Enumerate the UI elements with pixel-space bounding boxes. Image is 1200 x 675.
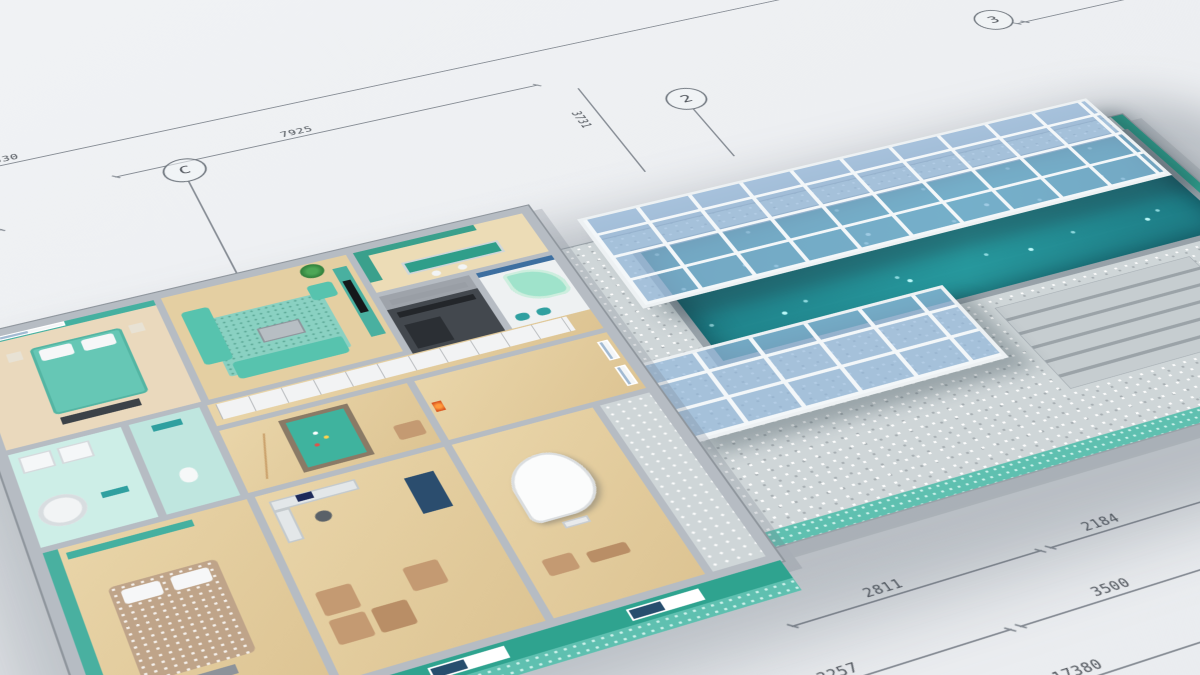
scene: 2150 17530 7925 9460 2181 2811 2184 1563… — [0, 0, 1200, 675]
armchair — [306, 280, 339, 300]
fireplace — [431, 400, 446, 412]
pillow — [120, 580, 164, 604]
bar-stool — [457, 263, 469, 270]
dimension-line — [1154, 0, 1200, 97]
armchair — [392, 419, 427, 440]
round-bathtub — [33, 489, 92, 531]
window — [0, 321, 66, 341]
blueprint-plane: 2150 17530 7925 9460 2181 2811 2184 1563… — [0, 0, 1200, 675]
grid-bubble-2-top: 2 — [659, 84, 714, 113]
bar-stool — [430, 269, 442, 276]
bed — [107, 558, 256, 675]
sofa-module — [402, 558, 449, 591]
nightstand — [128, 322, 146, 333]
dimension-label: 3500 — [1087, 575, 1134, 599]
billiard-balls — [323, 434, 329, 438]
plant — [297, 262, 327, 280]
interior-window — [597, 339, 621, 360]
dimension-line — [1129, 0, 1200, 26]
bidet — [535, 306, 553, 316]
bubble-leader — [1016, 21, 1026, 24]
sofa-module — [328, 610, 376, 645]
pillow — [38, 342, 75, 361]
grid-bubble-3: 3 — [966, 7, 1021, 33]
dimension-label: 3257 — [814, 660, 863, 675]
billiard-balls — [314, 442, 320, 446]
piano-bench — [562, 515, 592, 529]
billiard-balls — [312, 431, 318, 435]
cue-stick — [263, 433, 268, 479]
pillow — [80, 332, 117, 350]
dimension-line — [0, 228, 3, 317]
shelving — [404, 470, 453, 513]
vanity — [151, 418, 183, 431]
bubble-leader — [692, 108, 735, 156]
bench — [585, 541, 631, 563]
office-chair — [313, 508, 334, 523]
pillow — [170, 566, 214, 590]
dimension-line — [577, 88, 645, 172]
toilet — [514, 311, 532, 321]
dryer — [57, 440, 96, 464]
sofa-module — [370, 598, 418, 632]
dimension-label: 17380 — [1049, 656, 1107, 675]
closet-rack — [404, 316, 454, 348]
dimension-label: 17530 — [0, 152, 20, 169]
bubble-leader — [187, 180, 237, 272]
dimension-line — [1024, 0, 1200, 22]
armchair — [541, 551, 581, 576]
nightstand — [6, 351, 24, 363]
sink-counter — [101, 485, 130, 498]
pool-table — [278, 403, 375, 472]
dimension-label: 3731 — [568, 110, 595, 129]
sofa-module — [315, 582, 362, 616]
washing-machine — [18, 449, 57, 473]
toilet — [177, 465, 200, 484]
desk-return — [273, 507, 304, 543]
grand-piano — [497, 444, 610, 524]
grid-bubble-c-top: C — [158, 154, 212, 185]
interior-window — [614, 364, 638, 386]
